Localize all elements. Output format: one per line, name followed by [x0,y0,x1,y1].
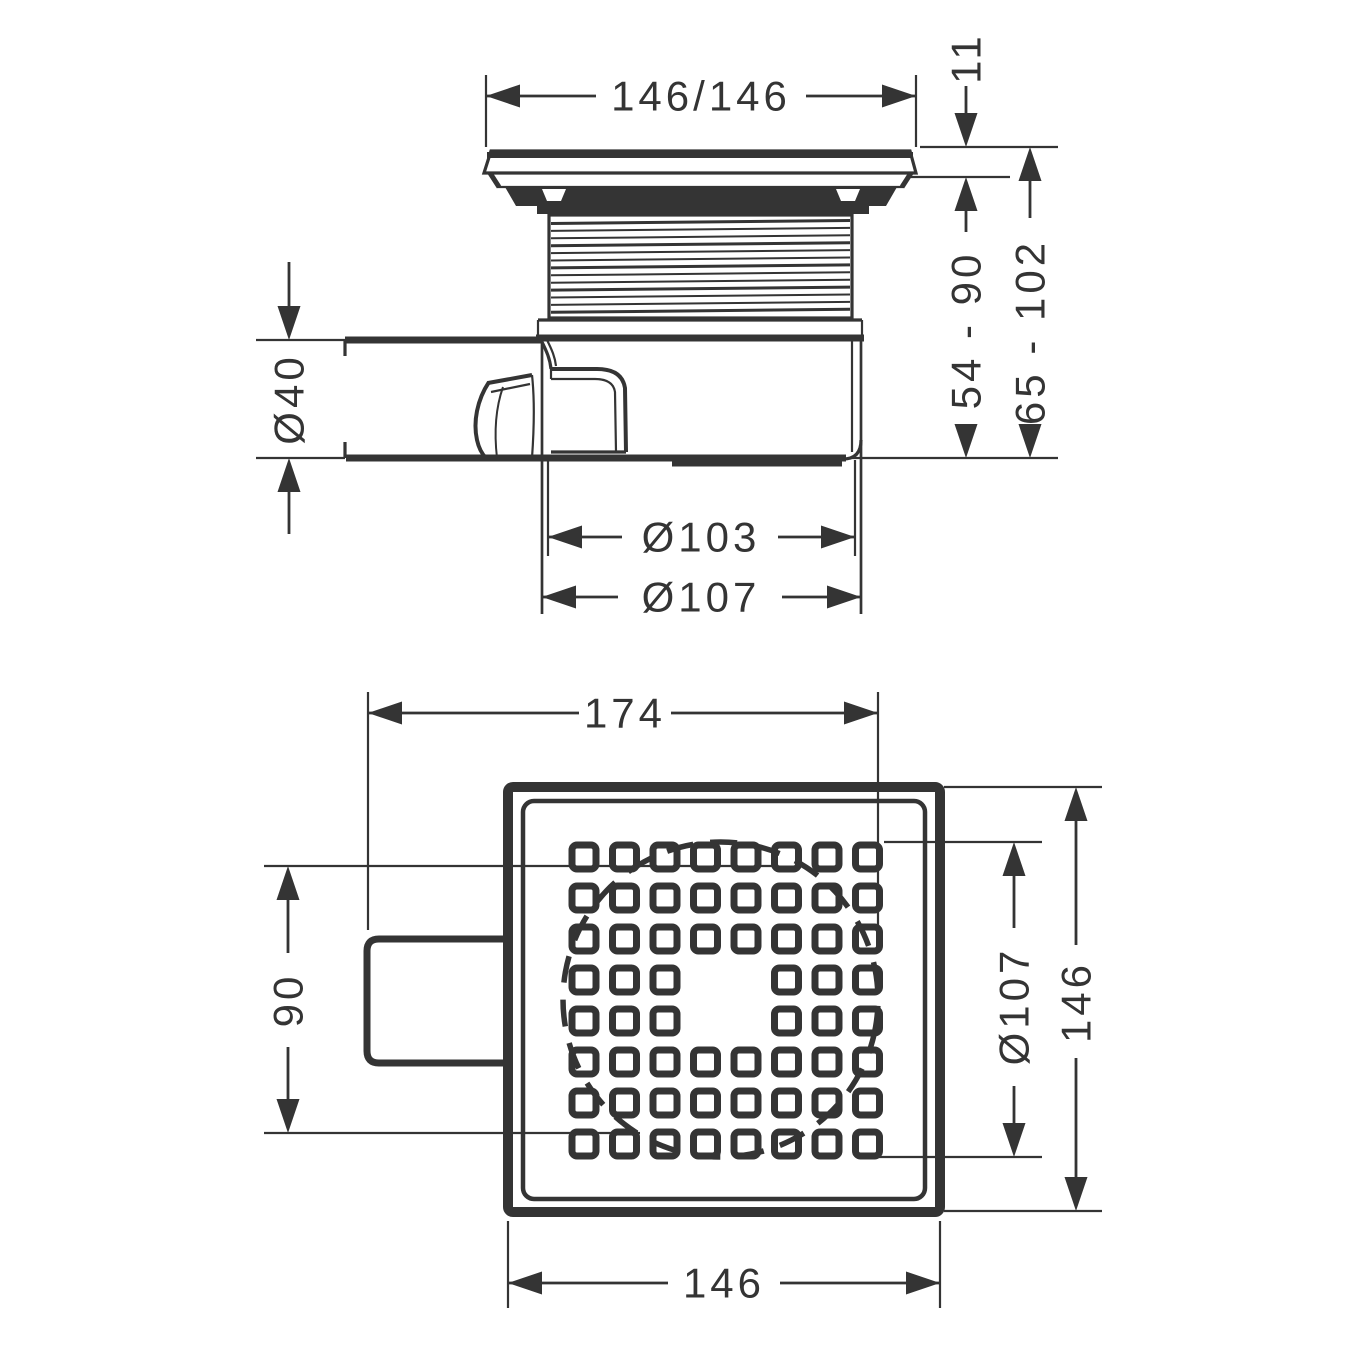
grate-hole [572,886,596,910]
dim-flange-diameter: Ø103 [548,514,855,561]
thread-line [551,287,850,290]
grate-hole [653,1009,677,1033]
dim-overall-width: 146/146 [486,73,916,148]
thread-line [551,243,850,246]
technical-drawing-page: 146/146 11 54 - 90 65 - 102 [0,0,1360,1360]
dim-plan-body-circle: Ø107 [991,842,1038,1157]
grate-hole [613,968,637,992]
dim-side-length-bottom: 146 [508,1221,940,1308]
grate-hole [734,927,758,951]
dim-side-length-right: 146 [1053,787,1100,1211]
grate-hole [815,927,839,951]
grate-hole [572,845,596,869]
grate-hole [734,1091,758,1115]
dim-body-diameter: Ø107 [542,574,861,621]
thread-line [551,235,850,238]
thread-line [551,221,850,224]
dim-label: 146/146 [611,73,791,120]
grate-hole [775,927,799,951]
side-elevation-view: 146/146 11 54 - 90 65 - 102 [256,32,1058,620]
grate-hole [856,845,880,869]
threaded-section [549,215,852,318]
dim-label: 54 - 90 [943,251,990,410]
grate-hole [572,1132,596,1156]
cover-plate [484,151,916,187]
grate-hole [613,1132,637,1156]
grate-hole [815,968,839,992]
grate-hole [613,1009,637,1033]
thread-line [551,309,850,312]
water-trap [476,340,627,458]
grate-hole [815,1091,839,1115]
drain-body [346,341,861,614]
dim-cover-height: 11 [906,32,1058,177]
grate-hole [734,1050,758,1074]
grate-hole [653,927,677,951]
grate-hole [694,886,718,910]
plan-view: 174 90 Ø107 146 [264,690,1102,1309]
dim-outlet-span: 90 [265,866,312,1133]
grate-hole [775,968,799,992]
grate-hole [613,1050,637,1074]
thread-lines [551,221,850,313]
dim-label: 11 [943,32,990,84]
dim-label: Ø107 [642,574,761,621]
grate-hole [694,927,718,951]
grate-hole [815,1009,839,1033]
dim-overall-length: 174 [368,690,878,737]
collar [536,320,864,338]
dim-label: Ø40 [266,353,313,444]
grate-hole [775,1009,799,1033]
thread-line [551,250,850,253]
plan-extension-lines [264,692,1102,1211]
adjustment-frame [505,187,897,214]
dim-frame-height-range: 54 - 90 [943,177,990,458]
grate-hole [815,1050,839,1074]
grate-hole [694,1050,718,1074]
grate-hole [815,1132,839,1156]
grate-hole [856,1091,880,1115]
grate-hole [775,1091,799,1115]
grate-hole [653,886,677,910]
dim-outlet-diameter: Ø40 [256,262,345,534]
outlet-pipe [345,340,543,458]
grate-hole [694,1091,718,1115]
grate-hole [613,927,637,951]
thread-line [551,272,850,275]
floor-drain-dimension-drawing: 146/146 11 54 - 90 65 - 102 [0,0,1360,1360]
thread-line [551,265,850,268]
grate-hole [775,845,799,869]
outlet-stub [367,939,508,1063]
grate-hole [613,1091,637,1115]
grate-hole [694,1132,718,1156]
grate-hole [694,845,718,869]
thread-line [551,295,850,298]
grate-hole [856,886,880,910]
grate-hole [572,968,596,992]
dim-label: Ø103 [642,514,761,561]
grate-hole [653,1050,677,1074]
grate-hole [653,968,677,992]
dim-label: 146 [1053,961,1100,1043]
grate-hole [734,845,758,869]
dim-label: 174 [584,690,666,737]
grate-hole [775,886,799,910]
grate-hole [653,1091,677,1115]
grate-hole [856,1132,880,1156]
grate-hole [572,1009,596,1033]
grate-hole [775,1050,799,1074]
thread-line [551,258,850,261]
thread-line [551,302,850,305]
grate-hole [734,886,758,910]
thread-line [551,280,850,283]
dim-label: 90 [265,973,312,1028]
grate-hole [815,845,839,869]
dim-label: 146 [683,1260,765,1307]
thread-line [551,228,850,231]
grate-hole [613,886,637,910]
dim-label: 65 - 102 [1007,239,1054,425]
dim-label: Ø107 [991,947,1038,1066]
